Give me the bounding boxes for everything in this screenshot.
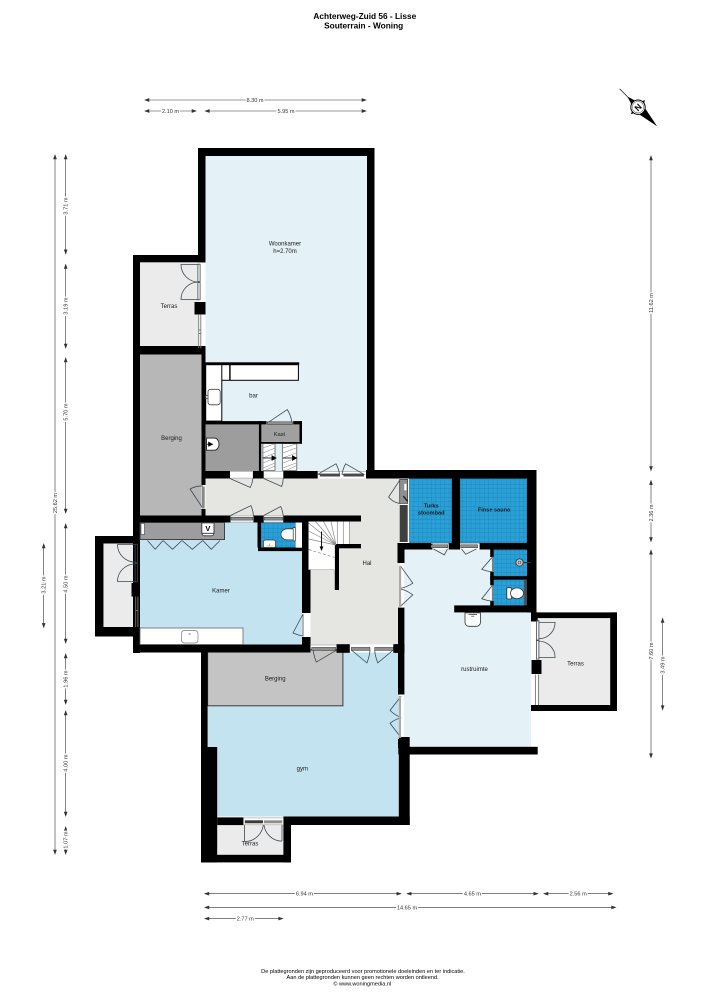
svg-text:Berging: Berging (161, 436, 182, 442)
svg-text:3.19 m: 3.19 m (64, 297, 70, 314)
svg-text:25.62 m: 25.62 m (53, 493, 59, 514)
svg-text:Berging: Berging (265, 676, 286, 682)
svg-text:Finse sauna: Finse sauna (478, 508, 511, 514)
svg-text:Souterrain - Woning: Souterrain - Woning (324, 20, 403, 30)
svg-text:8.30 m: 8.30 m (246, 98, 263, 104)
svg-text:stoombad: stoombad (418, 510, 445, 516)
svg-text:2.36 m: 2.36 m (649, 504, 655, 521)
svg-text:3.21 m: 3.21 m (42, 576, 48, 593)
svg-text:1.07 m: 1.07 m (64, 831, 70, 848)
svg-text:4.50 m: 4.50 m (64, 575, 70, 592)
svg-text:Terras: Terras (161, 304, 178, 310)
svg-text:© www.woningmedia.nl: © www.woningmedia.nl (333, 980, 391, 987)
svg-text:5.95 m: 5.95 m (277, 109, 294, 115)
svg-text:3.71 m: 3.71 m (64, 197, 70, 214)
svg-text:14.65 m: 14.65 m (397, 905, 418, 911)
svg-text:rustruimte: rustruimte (461, 667, 488, 673)
svg-text:Turks: Turks (424, 504, 439, 510)
svg-text:7.60 m: 7.60 m (649, 642, 655, 659)
svg-text:2.56 m: 2.56 m (570, 892, 587, 898)
svg-text:3.49 m: 3.49 m (661, 656, 667, 673)
svg-text:Kamer: Kamer (212, 589, 230, 595)
svg-text:h=2.70m: h=2.70m (273, 249, 297, 255)
svg-text:5.70 m: 5.70 m (64, 403, 70, 420)
svg-text:2.10 m: 2.10 m (162, 109, 179, 115)
svg-text:1.96 m: 1.96 m (64, 670, 70, 687)
svg-text:Kast: Kast (274, 432, 286, 438)
svg-text:bar: bar (249, 394, 258, 400)
svg-text:Terras: Terras (567, 662, 584, 668)
svg-text:De plattegronden zijn geproduc: De plattegronden zijn geproduceerd voor … (261, 969, 465, 975)
svg-text:6.94 m: 6.94 m (296, 892, 313, 898)
svg-text:gym: gym (297, 767, 308, 773)
svg-text:Woonkamer: Woonkamer (269, 242, 301, 248)
svg-text:Aan de plattegronden kunnen ge: Aan de plattegronden kunnen geen rechten… (287, 975, 440, 981)
svg-text:4.00 m: 4.00 m (64, 754, 70, 771)
svg-text:11.62 m: 11.62 m (649, 293, 655, 313)
svg-text:4.65 m: 4.65 m (464, 892, 481, 898)
svg-text:V: V (205, 524, 210, 533)
svg-text:2.77 m: 2.77 m (237, 917, 254, 923)
svg-text:Terras: Terras (242, 842, 259, 848)
svg-text:Hal: Hal (362, 561, 371, 567)
